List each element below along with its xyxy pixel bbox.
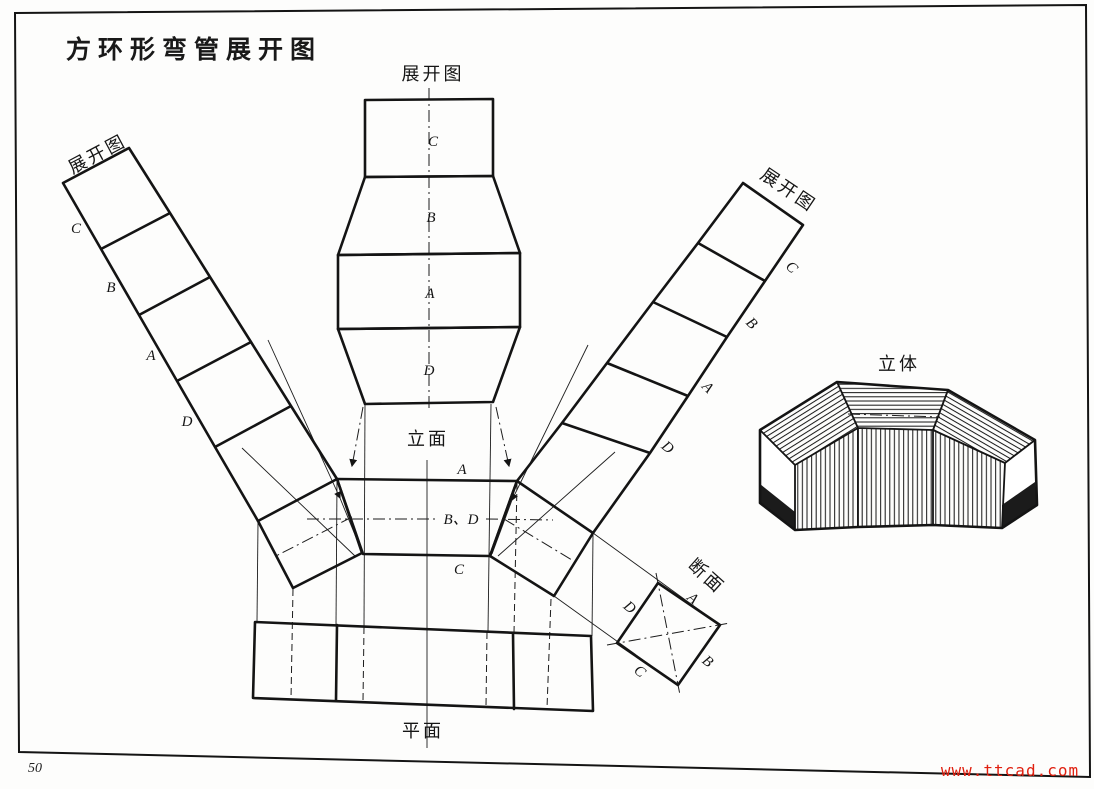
proj-line (488, 404, 491, 631)
arm-centerline-left (276, 517, 352, 556)
proj-line (592, 535, 593, 636)
development-left: 展开图 C B A D (63, 130, 337, 521)
unroll-ray (498, 452, 615, 556)
unroll-ray (512, 345, 588, 500)
proj-line-dashed (291, 589, 293, 699)
dev-left-ladder (63, 148, 337, 521)
view-label-development-right: 展开图 (757, 164, 820, 216)
dev-left-letter-d: D (181, 414, 193, 430)
plan-outline (253, 622, 593, 711)
dev-left-letter-a: A (145, 348, 156, 364)
view-label-pictorial: 立体 (878, 354, 920, 374)
plan-divider (513, 633, 514, 709)
proj-line-dashed (486, 632, 487, 706)
proj-line (364, 404, 365, 626)
arm-centerline-right (504, 519, 572, 560)
view-label-section: 断面 (684, 555, 729, 598)
pictorial-view: 立体 (760, 354, 1037, 530)
section-letter-b: B (699, 653, 716, 671)
proj-line (257, 523, 258, 621)
unfold-arrow-right (496, 407, 509, 466)
proj-line-dashed (514, 483, 517, 633)
dev-right-letter-a: A (698, 378, 717, 397)
section-letter-c: C (630, 662, 649, 681)
elevation-letter-a: A (456, 462, 467, 478)
dev-left-letter-b: B (106, 280, 115, 296)
page-title: 方环形弯管展开图 (66, 35, 322, 64)
technical-drawing: 方环形弯管展开图 展开图 (0, 0, 1094, 789)
dev-top-letter-d: D (423, 363, 435, 379)
dev-right-letter-c: C (782, 259, 801, 278)
dev-left-letter-c: C (71, 221, 82, 237)
dev-top-letter-c: C (428, 134, 439, 150)
plan-view: 平面 (253, 622, 593, 741)
unfold-arrow-left (352, 407, 363, 466)
proj-line (336, 481, 337, 625)
plan-divider (336, 625, 337, 700)
elevation-view: 立面 A B、D C (258, 429, 593, 596)
dev-top-letter-a: A (424, 286, 435, 302)
section-letter-a: A (683, 589, 702, 608)
view-label-elevation: 立面 (407, 429, 449, 449)
unroll-ray (268, 340, 340, 498)
view-label-plan: 平面 (402, 721, 444, 741)
dev-right-letter-b: B (742, 315, 760, 333)
dev-right-letter-d: D (657, 438, 676, 458)
projection-lines (242, 88, 720, 748)
unroll-ray (242, 448, 355, 556)
watermark: www.ttcad.com (941, 761, 1079, 780)
page-number: 50 (28, 761, 42, 776)
proj-line-dashed (363, 627, 364, 701)
elevation-left-arm (258, 479, 362, 588)
view-label-development-top: 展开图 (402, 64, 465, 84)
dev-top-letter-b: B (426, 210, 435, 226)
elevation-letter-bd: B、D (444, 512, 479, 528)
proj-line-dashed (547, 599, 551, 708)
scanned-page: 方环形弯管展开图 展开图 (0, 0, 1094, 789)
section-view: 断面 A D B C (607, 555, 730, 695)
view-label-development-left: 展开图 (65, 130, 130, 177)
elevation-letter-c: C (454, 562, 465, 578)
section-centerline (607, 623, 730, 645)
pictorial-front-face-center (858, 428, 933, 527)
elevation-centerline (486, 519, 553, 520)
elevation-right-arm (490, 481, 593, 596)
